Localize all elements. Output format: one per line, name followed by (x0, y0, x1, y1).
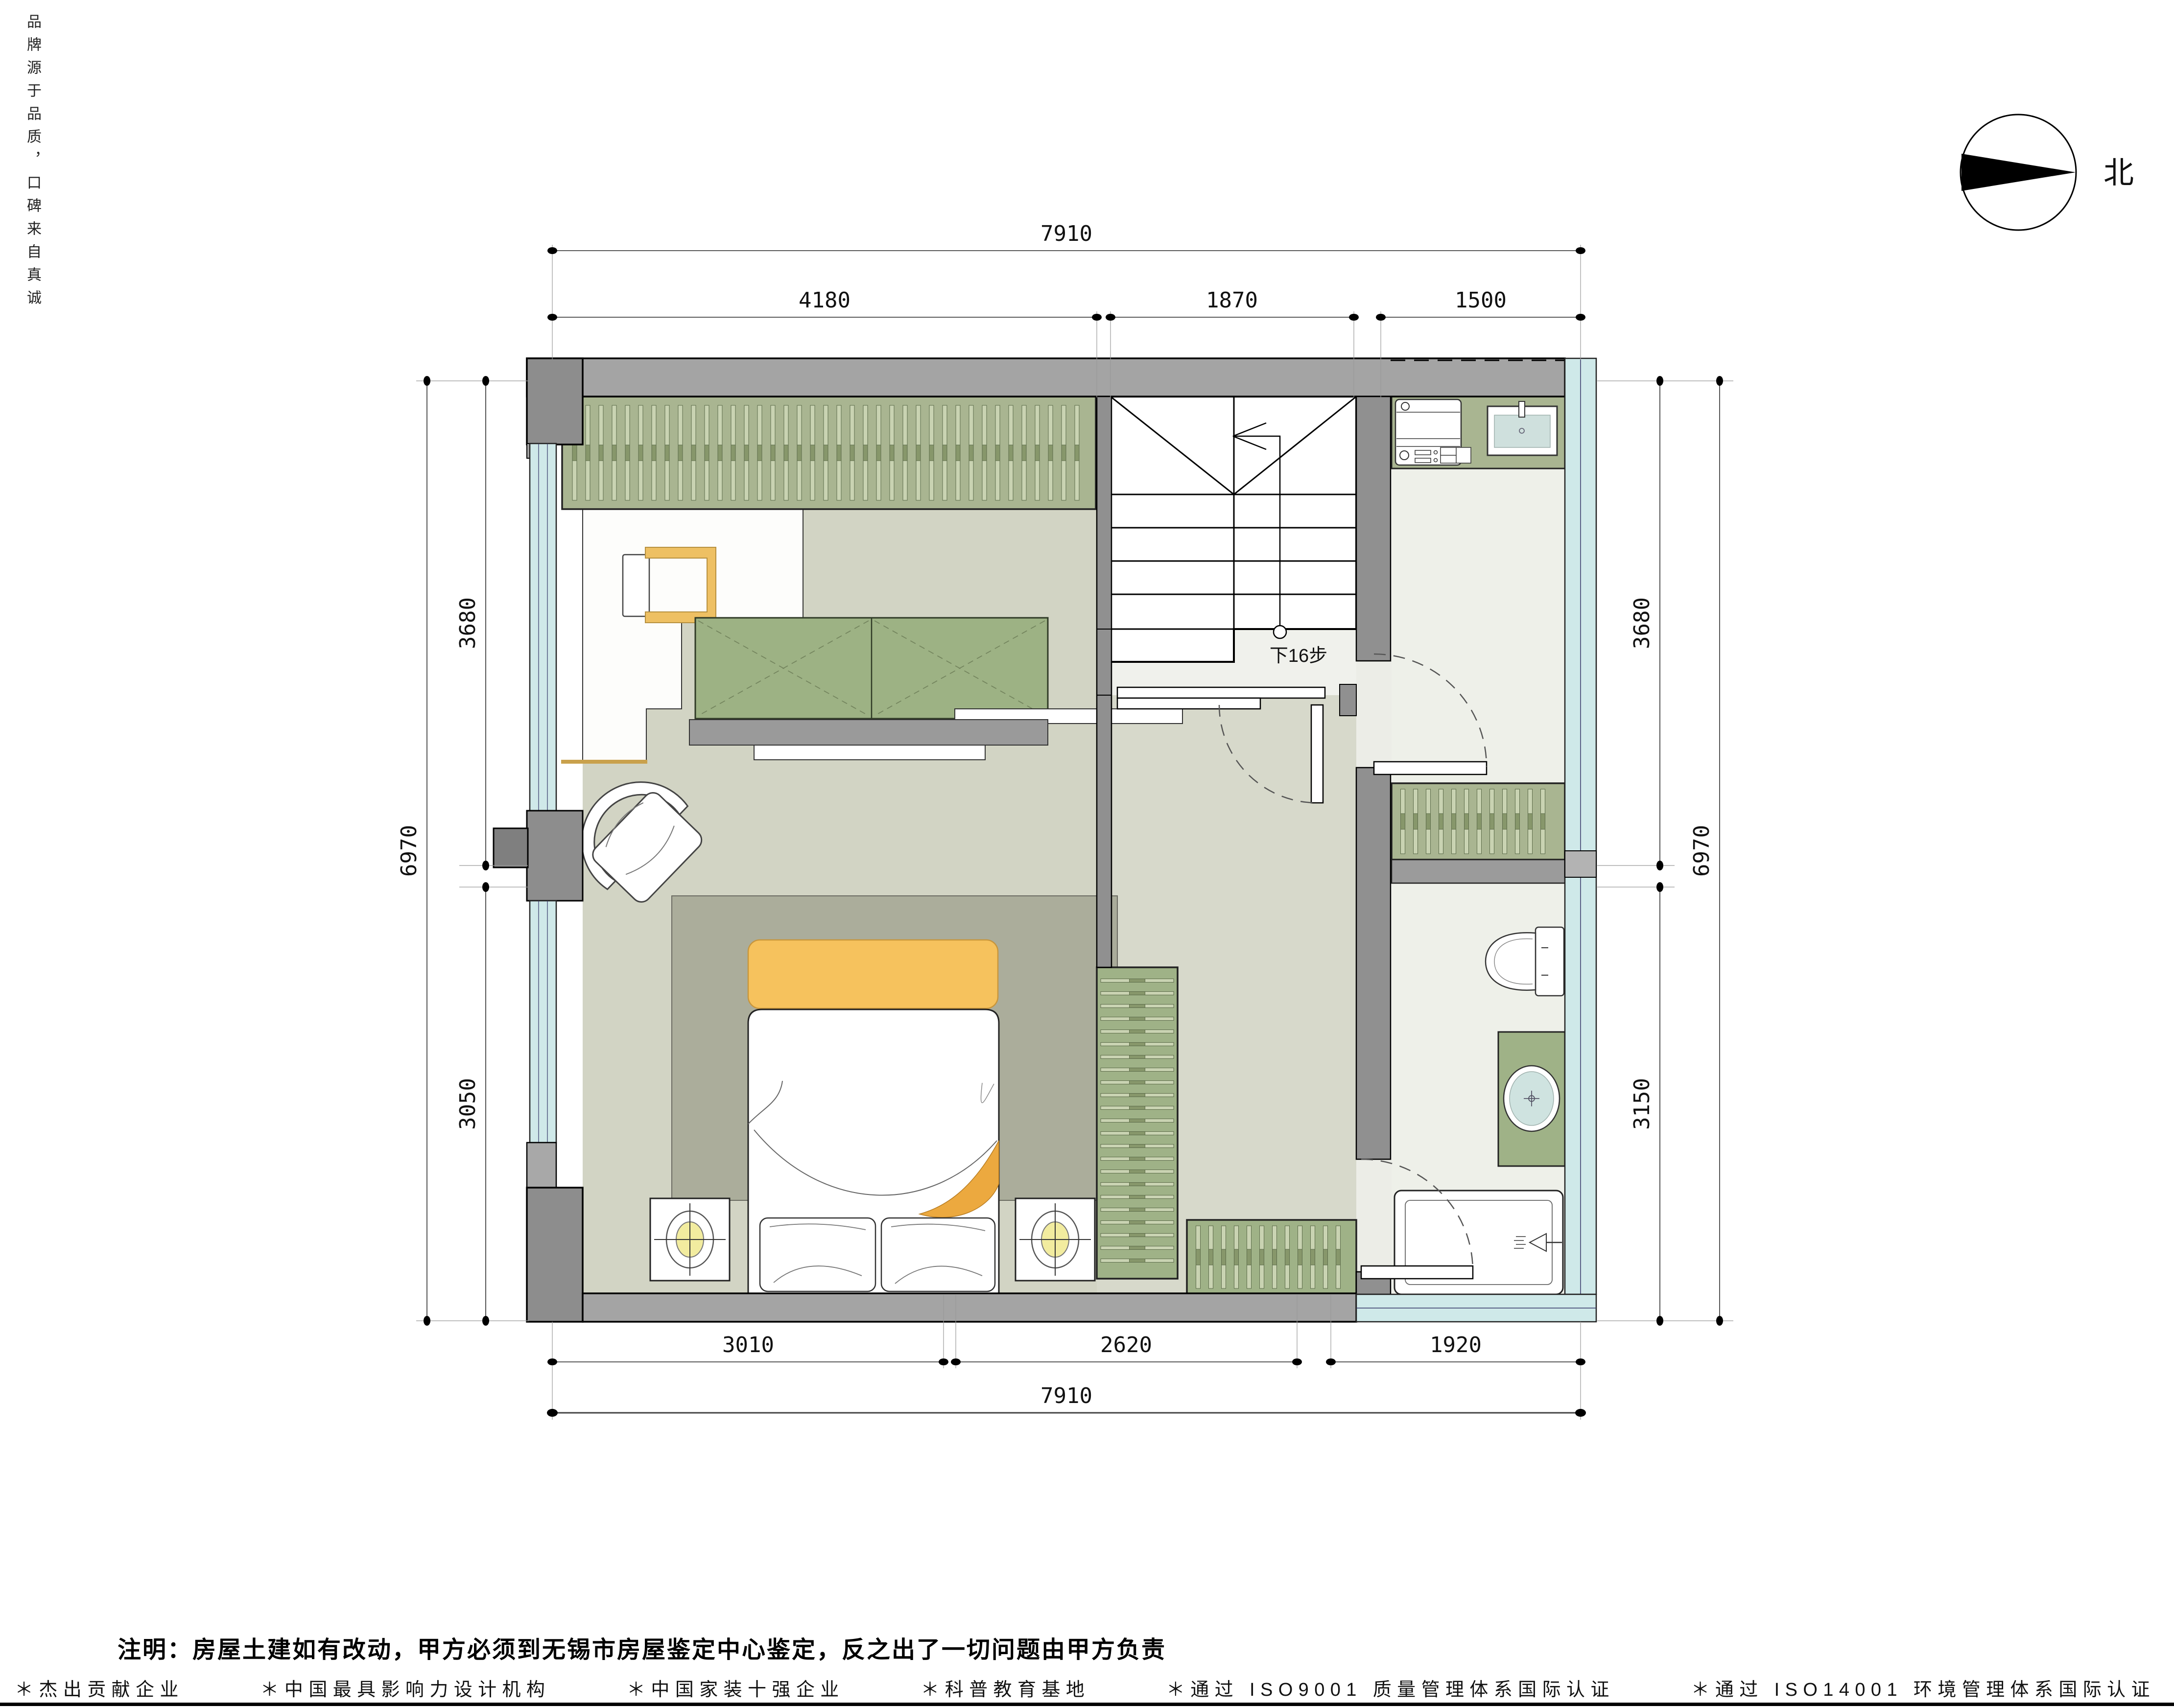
footer-item: ＊通过 ISO9001 质量管理体系国际认证 (1166, 1674, 1615, 1701)
dim-top-2: 1870 (1206, 288, 1258, 313)
bedroom-hall-partition (1097, 397, 1111, 967)
east-window-mullion-block (1565, 851, 1596, 877)
faucet-icon (1519, 401, 1525, 417)
stair-pier (1356, 397, 1391, 661)
dim-bottom-2: 2620 (1100, 1333, 1152, 1357)
south-wall (583, 1293, 1356, 1322)
north-compass: 北 (1961, 115, 2134, 230)
north-arrow-icon (1961, 154, 2076, 191)
footer-credentials: ＊杰出贡献企业 ＊中国最具影响力设计机构 ＊中国家装十强企业 ＊科普教育基地 ＊… (15, 1674, 2155, 1701)
drawing-sheet: 下16步 (0, 0, 2174, 1708)
dim-left-1: 3680 (455, 597, 480, 649)
entry-cabinet-low (1187, 1220, 1356, 1294)
laundry-sink (1488, 401, 1557, 455)
dim-left-2: 3050 (455, 1078, 480, 1130)
corner-column-sw (527, 1188, 583, 1322)
sheet-bottom-border (0, 1703, 2174, 1706)
bathroom-door-leaf (1361, 1266, 1473, 1279)
east-window-wall (1565, 358, 1596, 1294)
west-pier-projection (494, 828, 528, 867)
nightstand-right (1016, 1198, 1095, 1281)
washing-machine (1395, 399, 1471, 465)
dressing-wardrobe (1392, 783, 1565, 883)
disclaimer-note: 注明：房屋土建如有改动，甲方必须到无锡市房屋鉴定中心鉴定，反之出了一切问题由甲方… (118, 1630, 1166, 1664)
dim-right-2: 3150 (1630, 1078, 1654, 1130)
footer-item: ＊中国家装十强企业 (627, 1674, 845, 1701)
hall-door-leaf (1311, 705, 1323, 803)
dim-right-1: 3680 (1630, 597, 1654, 649)
stair-note: 下16步 (1270, 646, 1327, 666)
footer-item: ＊科普教育基地 (921, 1674, 1090, 1701)
north-wall (527, 358, 1565, 397)
dim-left-overall: 6970 (397, 825, 422, 877)
dressing-door-leaf (1374, 762, 1487, 774)
entry-shoe-cabinet-tall (1097, 967, 1178, 1279)
dim-right-overall: 6970 (1689, 825, 1714, 877)
bed-bench-cushion (748, 940, 998, 1008)
footer-item: ＊通过 ISO14001 环境管理体系国际认证 (1691, 1674, 2155, 1701)
floor-plan-canvas: 下16步 (0, 0, 2174, 1708)
window-west-lower (530, 901, 556, 1143)
dim-top-overall: 7910 (1040, 221, 1092, 246)
desk-chair (623, 555, 649, 616)
pillow-left (760, 1218, 875, 1291)
sliding-door-rail-a (1117, 687, 1325, 698)
dressing-shelf (1392, 860, 1565, 883)
nightstand-left (650, 1198, 730, 1281)
laundry-counter (1392, 397, 1565, 468)
north-label: 北 (2103, 156, 2134, 190)
bath-door-opening (1356, 1159, 1392, 1272)
footer-item: ＊中国最具影响力设计机构 (260, 1674, 551, 1701)
bath-wall (1356, 768, 1391, 1159)
window-west-upper (530, 444, 556, 811)
corner-column-nw (527, 358, 583, 445)
dim-bottom-overall: 7910 (1040, 1383, 1092, 1408)
footer-item: ＊杰出贡献企业 (15, 1674, 184, 1701)
west-window-wall (494, 444, 583, 1322)
dressing-room-floor (1392, 468, 1565, 785)
dim-top-1: 4180 (799, 288, 851, 313)
dim-bottom-3: 1920 (1430, 1333, 1482, 1357)
shelf-board-lower (754, 745, 985, 760)
west-pier (527, 811, 583, 901)
bedroom-wardrobe (562, 397, 1096, 509)
dim-bottom-1: 3010 (722, 1333, 774, 1357)
vanity (1498, 1032, 1565, 1166)
stair-start-marker (1274, 626, 1286, 638)
dresser-base-shelf (689, 720, 1048, 745)
brand-slogan-vertical: 品牌源于品质，口碑来自真诚 (22, 14, 43, 313)
bed (748, 1009, 999, 1293)
staircase: 下16步 (1111, 397, 1356, 666)
dim-top-3: 1500 (1455, 288, 1507, 313)
dressing-door-opening (1356, 661, 1392, 768)
nook-edge-trim (561, 760, 647, 764)
sliding-door-rail-b (1117, 698, 1260, 709)
